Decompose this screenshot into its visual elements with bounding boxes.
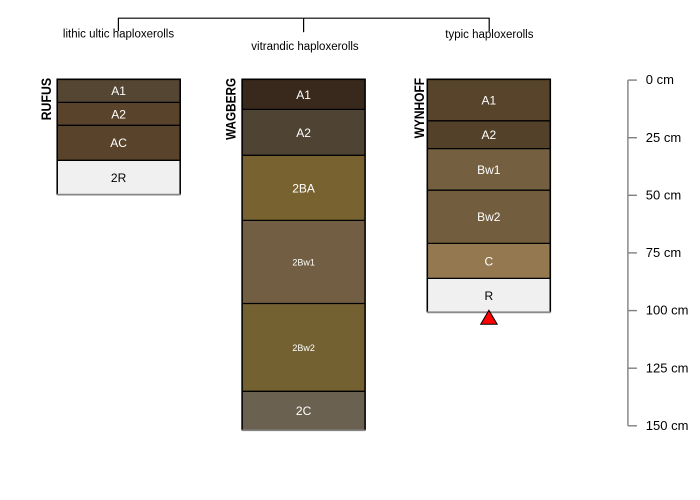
svg-text:A2: A2 xyxy=(481,128,496,142)
svg-text:AC: AC xyxy=(110,136,127,150)
svg-text:typic haploxerolls: typic haploxerolls xyxy=(445,29,533,41)
svg-text:125 cm: 125 cm xyxy=(646,360,689,375)
svg-text:A2: A2 xyxy=(111,107,126,121)
svg-text:50 cm: 50 cm xyxy=(646,187,681,202)
svg-text:C: C xyxy=(484,254,493,268)
svg-text:vitrandic haploxerolls: vitrandic haploxerolls xyxy=(251,41,359,53)
svg-text:2C: 2C xyxy=(296,404,312,418)
svg-text:A2: A2 xyxy=(296,126,311,140)
svg-text:RUFUS: RUFUS xyxy=(38,78,54,121)
svg-text:75 cm: 75 cm xyxy=(646,245,681,260)
svg-text:2Bw2: 2Bw2 xyxy=(292,343,315,353)
svg-text:2R: 2R xyxy=(111,171,127,185)
svg-text:2BA: 2BA xyxy=(292,181,315,195)
svg-text:WAGBERG: WAGBERG xyxy=(223,78,239,140)
svg-text:2Bw1: 2Bw1 xyxy=(292,257,315,267)
svg-text:0 cm: 0 cm xyxy=(646,72,674,87)
svg-text:WYNHOFF: WYNHOFF xyxy=(411,78,427,139)
svg-text:25 cm: 25 cm xyxy=(646,130,681,145)
svg-text:lithic ultic haploxerolls: lithic ultic haploxerolls xyxy=(63,29,174,41)
svg-text:150 cm: 150 cm xyxy=(646,418,689,433)
svg-text:100 cm: 100 cm xyxy=(646,303,689,318)
svg-text:Bw1: Bw1 xyxy=(477,163,501,177)
svg-text:A1: A1 xyxy=(296,88,311,102)
svg-text:A1: A1 xyxy=(111,84,126,98)
svg-text:A1: A1 xyxy=(481,94,496,108)
svg-text:R: R xyxy=(484,289,493,303)
svg-text:Bw2: Bw2 xyxy=(477,210,501,224)
